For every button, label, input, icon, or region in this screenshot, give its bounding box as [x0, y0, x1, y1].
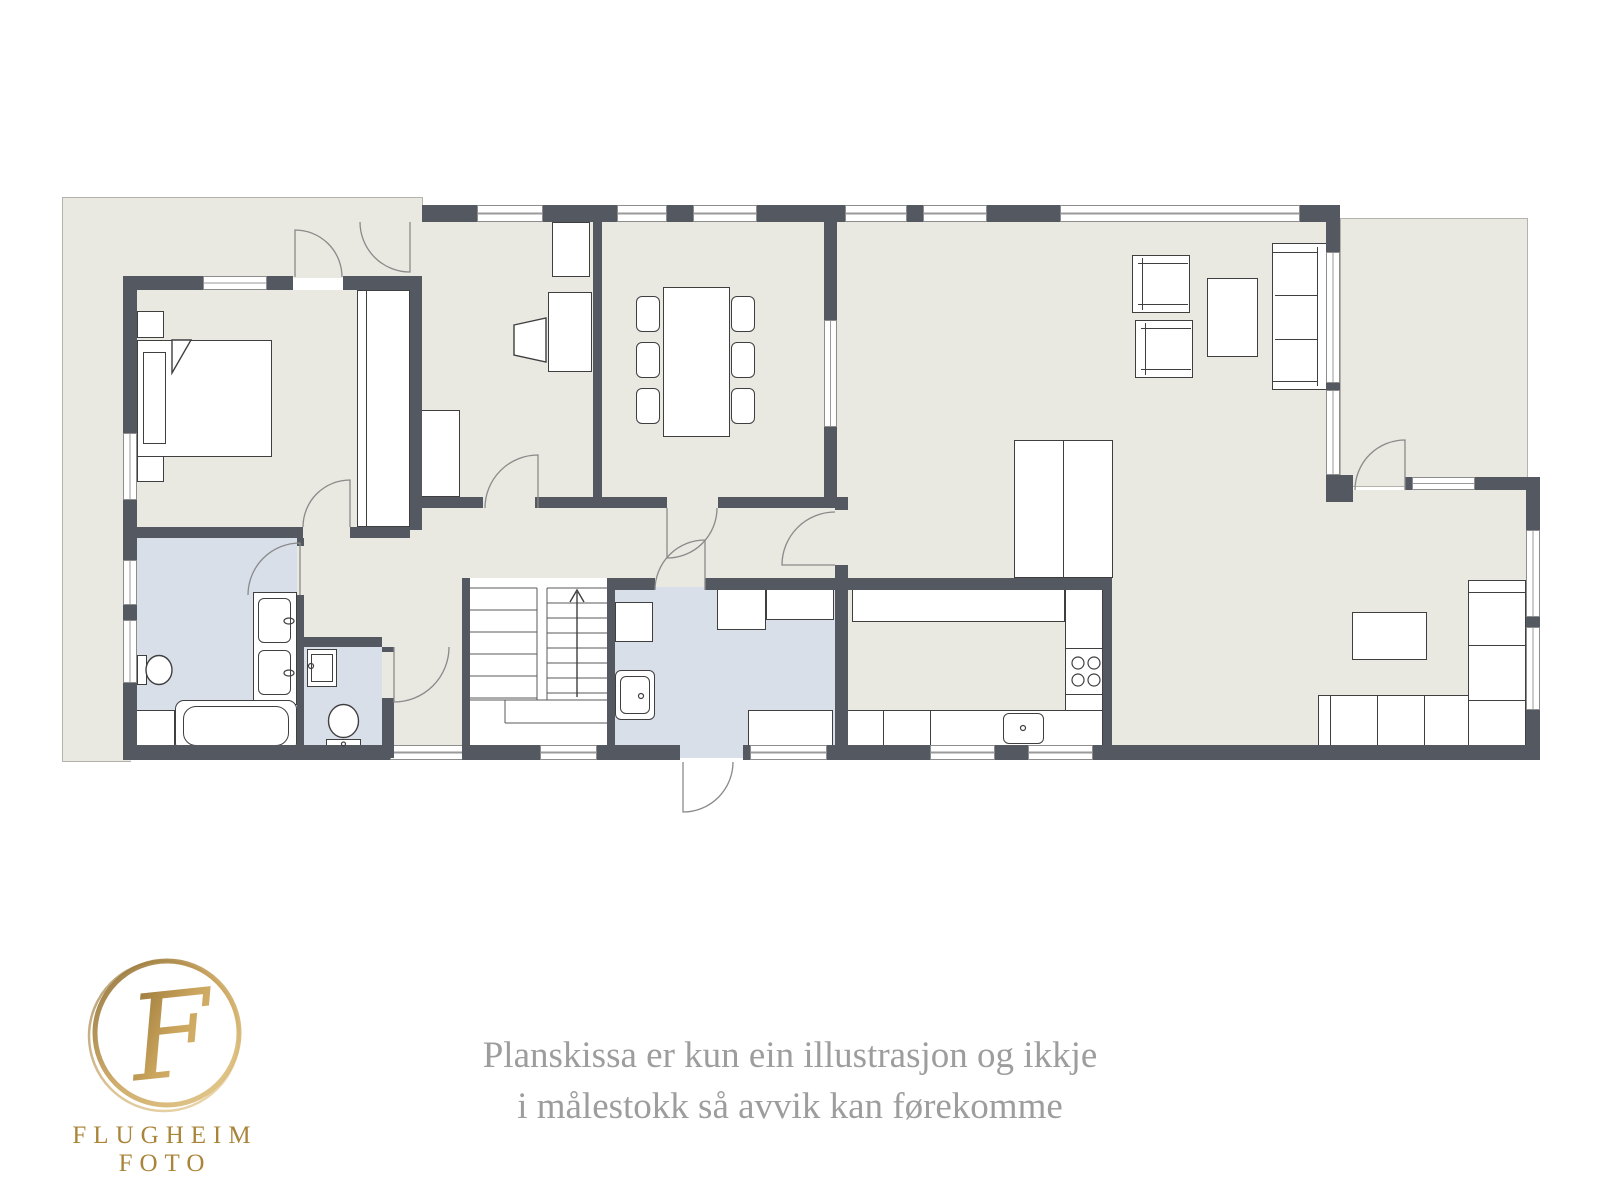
wall-segment [835, 565, 848, 758]
caption-line-2: i målestokk så avvik kan førekomme [400, 1081, 1180, 1132]
window [1326, 252, 1340, 383]
window [123, 433, 137, 500]
office-cabinet [552, 222, 590, 277]
dining-chair [731, 388, 755, 424]
wall-segment [123, 745, 390, 760]
wall-segment [667, 205, 693, 222]
family-coffee-table [1352, 612, 1427, 660]
sofa-cushion-line [1275, 339, 1317, 340]
armchair-arm-line [1138, 304, 1188, 305]
wall-segment [1326, 475, 1353, 502]
armchair-back-line [1142, 258, 1143, 310]
kitchen-counter-bottom [843, 710, 1103, 750]
counter-divider [883, 711, 884, 749]
armchair-back-line [1145, 323, 1146, 375]
wall-segment [824, 427, 837, 505]
nightstand [137, 455, 164, 482]
wall-segment [705, 578, 836, 590]
wall-segment [824, 222, 837, 320]
wall-segment [123, 276, 137, 433]
wall-segment [835, 497, 848, 510]
sofa-back-line [1317, 247, 1318, 386]
staircase-floor [470, 578, 607, 760]
wall-segment [1103, 578, 1112, 758]
sofa-arm-line [1272, 381, 1318, 382]
window [1412, 477, 1475, 490]
office-sideboard [420, 410, 460, 497]
wc-sink-basin [311, 654, 333, 682]
window [477, 205, 543, 222]
wall-segment [1405, 477, 1412, 490]
disclaimer-caption: Planskissa er kun ein illustrasjon og ik… [400, 1030, 1180, 1132]
window [1326, 390, 1340, 475]
dining-chair [636, 342, 660, 378]
office-desk [548, 292, 592, 372]
sofa-cushion-line [1469, 645, 1525, 646]
wall-segment [465, 745, 540, 760]
bed-pillow [143, 352, 166, 444]
wall-segment [987, 205, 1060, 222]
wall-segment [1526, 477, 1540, 530]
wall-segment [382, 698, 394, 758]
dining-table [663, 287, 730, 437]
wall-segment [267, 276, 293, 290]
wall-segment [297, 538, 304, 546]
window [845, 205, 907, 222]
caption-line-1: Planskissa er kun ein illustrasjon og ik… [400, 1030, 1180, 1081]
wall-segment [462, 578, 470, 760]
kitchen-sink [1003, 713, 1044, 744]
corner-sofa-right [1468, 580, 1526, 758]
wall-segment [422, 205, 477, 222]
sofa-back-line [1469, 592, 1525, 593]
sofa-cushion-line [1469, 700, 1525, 701]
window [1526, 627, 1540, 710]
nightstand [137, 311, 164, 338]
window [123, 620, 137, 683]
kitchen-stove [1065, 648, 1103, 695]
wall-segment [422, 497, 483, 508]
logo-circle-icon [89, 961, 239, 1111]
armchair-arm-line [1138, 263, 1188, 264]
glass-partition [824, 320, 837, 427]
window [930, 745, 995, 760]
kitchen-counter-top [852, 585, 1065, 622]
wall-segment [410, 290, 422, 530]
dining-chair [636, 388, 660, 424]
wall-segment [613, 578, 655, 590]
logo-circle-icon [95, 961, 239, 1105]
wall-segment [297, 637, 382, 647]
window [923, 205, 987, 222]
dining-chair [636, 296, 660, 332]
window [390, 745, 465, 760]
dining-chair [731, 342, 755, 378]
window [1526, 530, 1540, 617]
bathroom-cabinet [136, 710, 175, 748]
window [693, 205, 757, 222]
sofa-arm-line [1272, 252, 1318, 253]
door-arc [683, 762, 733, 812]
wall-segment [848, 578, 1112, 590]
window [203, 276, 267, 290]
bathroom-sink [258, 598, 291, 643]
wall-segment [297, 595, 304, 758]
wall-segment [1526, 617, 1540, 627]
dining-chair [731, 296, 755, 332]
hall-corridor-floor [410, 530, 470, 758]
wall-segment [602, 497, 667, 508]
wall-segment [1526, 710, 1540, 760]
wall-segment [343, 276, 422, 290]
wall-segment [1326, 383, 1340, 390]
wardrobe-door-line [366, 291, 367, 526]
logo-monogram: F [121, 962, 223, 1108]
window [1028, 745, 1093, 760]
wall-segment [907, 205, 923, 222]
wall-segment [123, 605, 137, 620]
window [617, 205, 667, 222]
coffee-table [1207, 278, 1258, 357]
wall-segment [757, 205, 845, 222]
wall-segment [607, 578, 615, 760]
wall-segment [743, 745, 750, 760]
flugheim-foto-logo: F [75, 945, 260, 1125]
wall-segment [543, 205, 617, 222]
terrace-top-right [1340, 218, 1528, 487]
window [123, 560, 137, 605]
bathroom-sink [258, 650, 291, 695]
window [750, 745, 827, 760]
wall-segment [535, 497, 602, 508]
sofa [1272, 243, 1328, 390]
bathtub-inner [183, 706, 289, 746]
counter-divider [930, 711, 931, 749]
laundry-appliance [748, 710, 833, 748]
wall-segment [995, 745, 1028, 760]
wall-segment [350, 527, 410, 538]
armchair-arm-line [1141, 328, 1191, 329]
wall-segment [1093, 745, 1540, 760]
wall-segment [593, 222, 602, 505]
armchair-arm-line [1141, 369, 1191, 370]
laundry-cabinet [615, 602, 653, 642]
sofa-cushion-line [1275, 295, 1317, 296]
logo-wordmark: FLUGHEIM FOTO [20, 1122, 310, 1178]
terrace-left-strip [62, 197, 131, 762]
floor-plan-page: F FLUGHEIM FOTO Planskissa er kun ein il… [0, 0, 1600, 1200]
toilet-tank [137, 655, 147, 685]
wall-segment [718, 497, 835, 508]
wall-segment [1326, 205, 1340, 252]
window [540, 745, 597, 760]
laundry-sink-basin [620, 676, 650, 714]
wardrobe [357, 290, 410, 527]
window [1060, 205, 1300, 222]
wall-segment [123, 527, 303, 538]
cabinet-door-line [1063, 441, 1064, 577]
wall-segment [382, 647, 394, 652]
